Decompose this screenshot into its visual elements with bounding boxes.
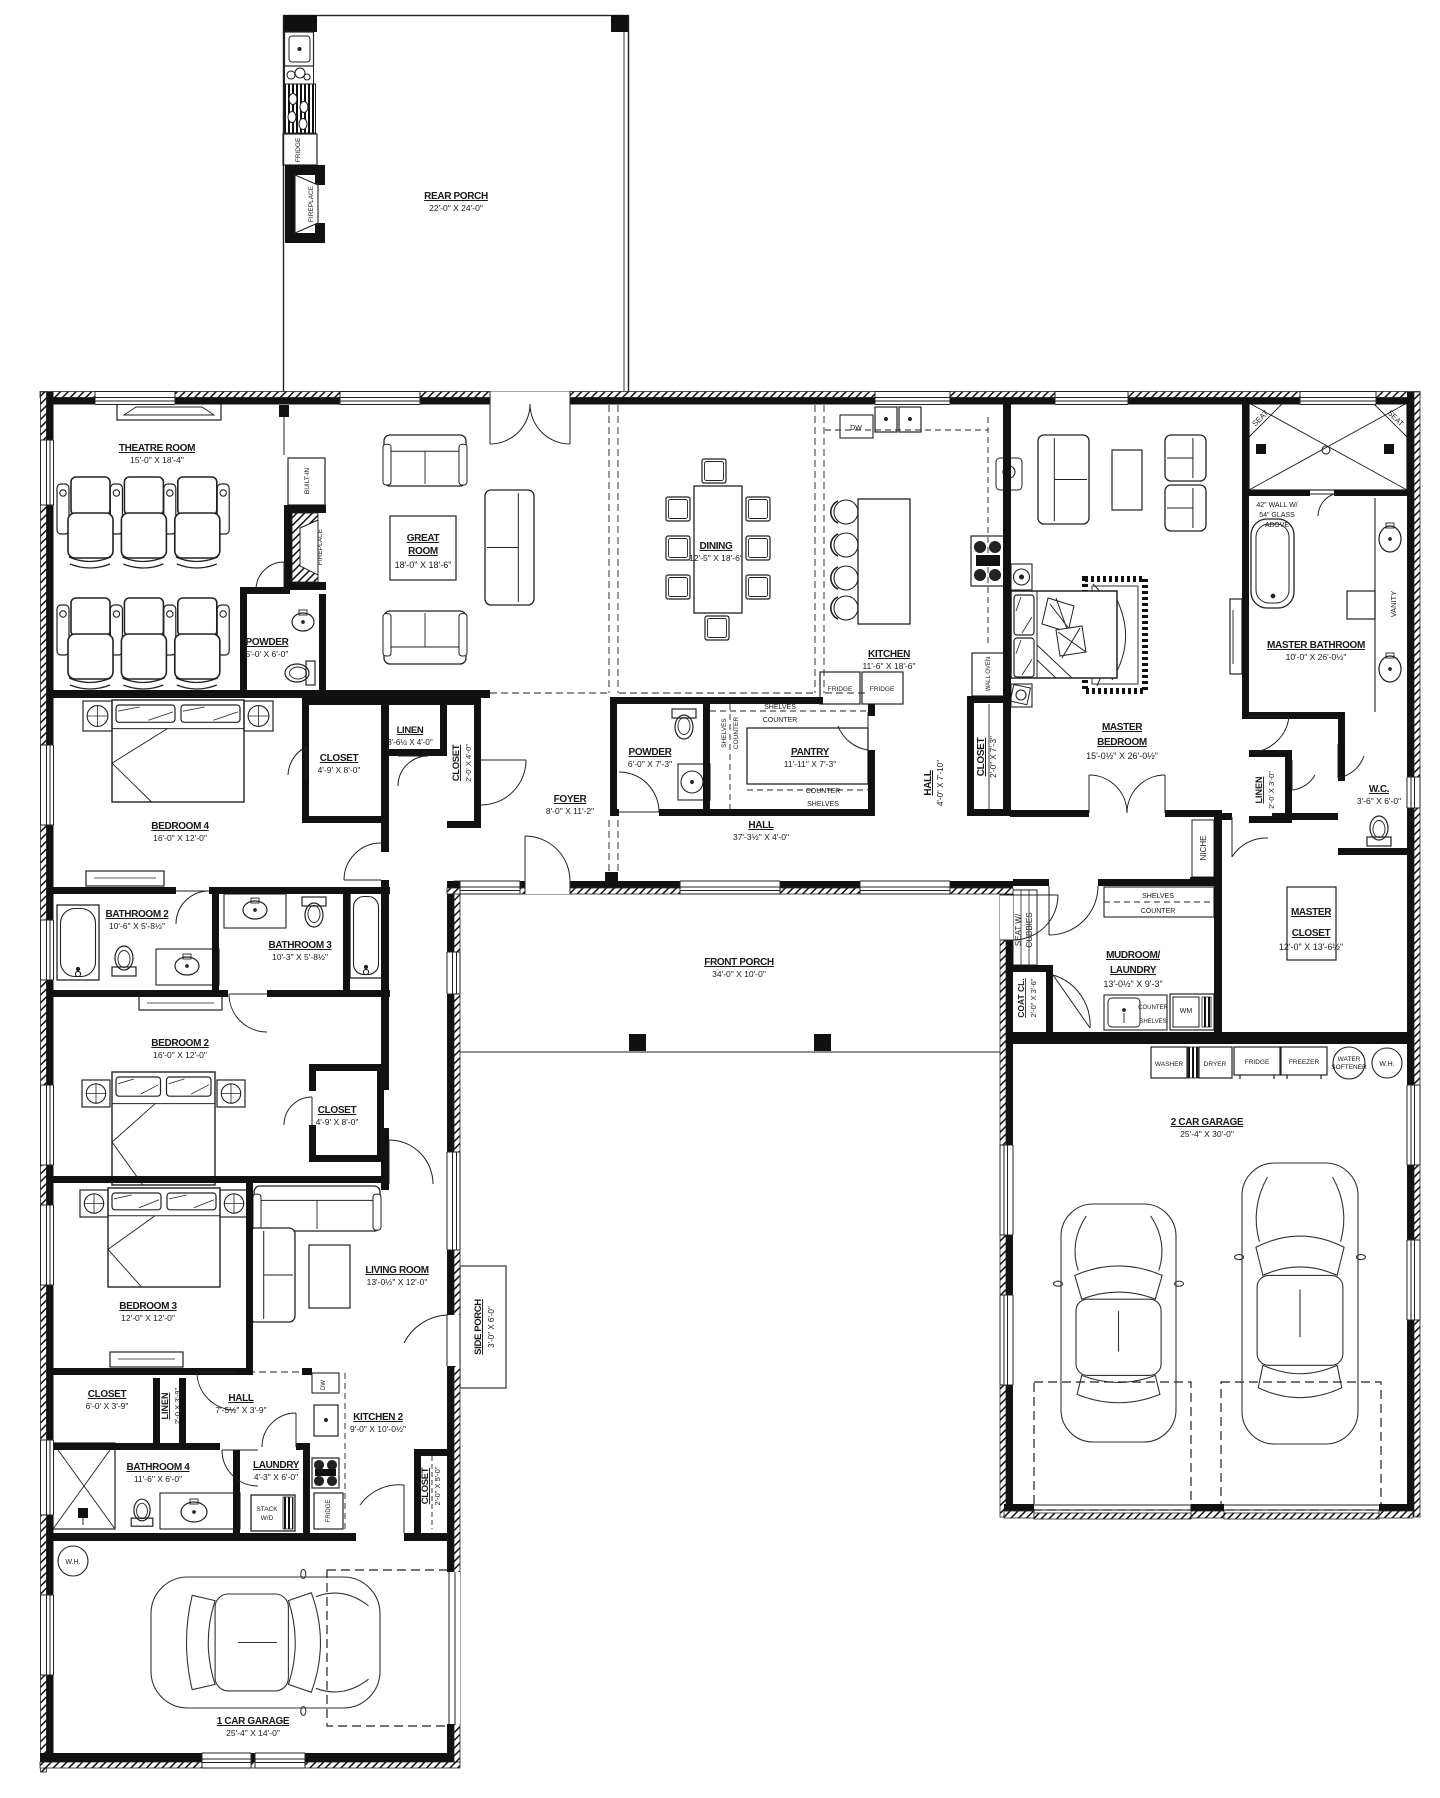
svg-text:2'-0" X 5'-0": 2'-0" X 5'-0": [433, 1466, 442, 1505]
svg-text:DINING: DINING: [700, 541, 733, 552]
svg-text:2'-0' X 4'-0": 2'-0' X 4'-0": [464, 744, 473, 782]
svg-text:12'-0" X 12'-0": 12'-0" X 12'-0": [121, 1313, 175, 1323]
svg-text:LINEN: LINEN: [397, 725, 424, 736]
svg-text:NICHE: NICHE: [1199, 836, 1208, 861]
svg-text:FOYER: FOYER: [554, 794, 588, 805]
svg-text:COUNTER: COUNTER: [763, 717, 798, 724]
svg-text:FRIDGE: FRIDGE: [828, 686, 853, 693]
svg-text:16'-0" X 12'-0": 16'-0" X 12'-0": [153, 1050, 207, 1060]
svg-text:BATHROOM 4: BATHROOM 4: [127, 1462, 191, 1473]
svg-text:LAUNDRY: LAUNDRY: [1110, 965, 1157, 976]
svg-text:7'-5½" X 3'-9": 7'-5½" X 3'-9": [215, 1405, 266, 1415]
svg-text:13'-0½" X 9'-3": 13'-0½" X 9'-3": [1103, 979, 1162, 989]
svg-text:COUNTER: COUNTER: [1141, 908, 1176, 915]
svg-text:COUNTER: COUNTER: [733, 717, 740, 749]
svg-text:6'-0" X 7'-3": 6'-0" X 7'-3": [628, 759, 672, 769]
svg-text:FREEZER: FREEZER: [1289, 1059, 1320, 1066]
svg-text:FIREPLACE: FIREPLACE: [317, 528, 324, 565]
svg-text:W.C.: W.C.: [1369, 784, 1390, 795]
svg-text:5'-0' X 6'-0": 5'-0' X 6'-0": [246, 649, 289, 659]
svg-text:CLOSET: CLOSET: [420, 1467, 431, 1504]
svg-text:12'-5" X 18'-6": 12'-5" X 18'-6": [689, 553, 743, 563]
svg-text:LAUNDRY: LAUNDRY: [253, 1460, 300, 1471]
svg-text:2 CAR GARAGE: 2 CAR GARAGE: [1171, 1117, 1244, 1128]
svg-text:BATHROOM 2: BATHROOM 2: [106, 909, 170, 920]
svg-text:BEDROOM 4: BEDROOM 4: [151, 821, 209, 832]
svg-text:FRIDGE: FRIDGE: [870, 686, 895, 693]
svg-text:2'-0" X 7'-3": 2'-0" X 7'-3": [989, 736, 998, 778]
svg-text:3'-6" X 6'-0": 3'-6" X 6'-0": [1357, 796, 1401, 806]
svg-text:12'-0" X 13'-6½": 12'-0" X 13'-6½": [1279, 942, 1343, 952]
svg-text:3'-0" X 6'-0": 3'-0" X 6'-0": [487, 1306, 496, 1348]
svg-text:LINEN: LINEN: [160, 1393, 170, 1420]
svg-text:FRIDGE: FRIDGE: [326, 1500, 332, 1523]
svg-text:REAR PORCH: REAR PORCH: [424, 191, 488, 202]
svg-text:54" GLASS: 54" GLASS: [1259, 512, 1295, 519]
svg-text:3'-6½ X 4'-0": 3'-6½ X 4'-0": [387, 738, 433, 747]
svg-text:BEDROOM 3: BEDROOM 3: [119, 1301, 177, 1312]
svg-text:4'-9' X 8'-0": 4'-9' X 8'-0": [318, 765, 361, 775]
svg-text:DW: DW: [321, 1380, 327, 1390]
svg-text:25'-4" X 14'-0": 25'-4" X 14'-0": [226, 1728, 280, 1738]
svg-text:4'-9' X 8'-0": 4'-9' X 8'-0": [316, 1117, 359, 1127]
svg-text:KITCHEN 2: KITCHEN 2: [353, 1412, 403, 1423]
svg-text:CLOSET: CLOSET: [320, 753, 359, 764]
svg-text:THEATRE ROOM: THEATRE ROOM: [119, 443, 195, 454]
svg-text:10'-3" X 5'-8½": 10'-3" X 5'-8½": [272, 952, 328, 962]
svg-text:SHELVES: SHELVES: [1142, 893, 1174, 900]
svg-text:9'-0" X 10'-0½": 9'-0" X 10'-0½": [350, 1424, 406, 1434]
svg-text:MASTER BATHROOM: MASTER BATHROOM: [1267, 640, 1365, 651]
svg-text:42" WALL W/: 42" WALL W/: [1256, 502, 1297, 509]
svg-text:SIDE PORCH: SIDE PORCH: [473, 1299, 484, 1355]
svg-text:SEAT W/: SEAT W/: [1014, 913, 1023, 946]
svg-text:BEDROOM: BEDROOM: [1097, 737, 1147, 748]
svg-text:VANITY: VANITY: [1389, 591, 1398, 618]
svg-text:CLOSET: CLOSET: [1292, 928, 1331, 939]
svg-text:8'-0" X 11'-2": 8'-0" X 11'-2": [546, 806, 594, 816]
svg-text:MASTER: MASTER: [1102, 722, 1143, 733]
svg-text:BEDROOM 2: BEDROOM 2: [151, 1038, 209, 1049]
svg-text:WALL OVEN: WALL OVEN: [986, 657, 992, 692]
svg-text:CLOSET: CLOSET: [451, 744, 462, 781]
svg-text:SOFTENER: SOFTENER: [1331, 1064, 1367, 1071]
svg-text:37'-3½" X 4'-0": 37'-3½" X 4'-0": [733, 832, 789, 842]
svg-text:HALL: HALL: [748, 820, 774, 831]
svg-text:15'-0" X 18'-4": 15'-0" X 18'-4": [130, 455, 184, 465]
svg-text:10'-6" X 5'-8½": 10'-6" X 5'-8½": [109, 921, 165, 931]
svg-text:STACK: STACK: [256, 1506, 278, 1513]
svg-text:PANTRY: PANTRY: [791, 747, 830, 758]
svg-text:SHELVES: SHELVES: [807, 801, 839, 808]
svg-text:POWDER: POWDER: [246, 637, 290, 648]
svg-text:SHELVES: SHELVES: [721, 718, 728, 748]
svg-text:HALL: HALL: [923, 770, 934, 796]
svg-text:BATHROOM 3: BATHROOM 3: [269, 940, 333, 951]
svg-text:DW: DW: [850, 425, 862, 432]
svg-text:W.H.: W.H.: [1379, 1061, 1394, 1068]
svg-text:COUNTER: COUNTER: [1138, 1005, 1168, 1011]
svg-text:2'-0" X 3'-6": 2'-0" X 3'-6": [1029, 978, 1038, 1017]
svg-text:COAT CL.: COAT CL.: [1016, 978, 1026, 1018]
svg-text:COUNTER: COUNTER: [806, 788, 841, 795]
svg-text:KITCHEN: KITCHEN: [868, 649, 910, 660]
svg-text:34'-0" X 10'-0": 34'-0" X 10'-0": [712, 969, 766, 979]
svg-text:13'-0½" X 12'-0": 13'-0½" X 12'-0": [367, 1277, 428, 1287]
svg-text:MASTER: MASTER: [1291, 907, 1332, 918]
svg-text:25'-4" X 30'-0": 25'-4" X 30'-0": [1180, 1129, 1234, 1139]
svg-text:11'-6" X 6'-0": 11'-6" X 6'-0": [134, 1474, 182, 1484]
svg-text:WASHER: WASHER: [1155, 1061, 1184, 1068]
svg-text:CLOSET: CLOSET: [318, 1105, 357, 1116]
svg-text:18'-0" X 18'-6": 18'-0" X 18'-6": [395, 560, 452, 570]
svg-text:POWDER: POWDER: [629, 747, 673, 758]
svg-text:FIREPLACE: FIREPLACE: [308, 185, 315, 222]
svg-text:WM: WM: [1180, 1008, 1193, 1015]
svg-text:11'-6" X 18'-6": 11'-6" X 18'-6": [862, 661, 915, 671]
svg-text:4'-0" X 7'-10": 4'-0" X 7'-10": [936, 760, 945, 806]
svg-text:CLOSET: CLOSET: [976, 738, 987, 777]
svg-text:16'-0" X 12'-0": 16'-0" X 12'-0": [153, 833, 207, 843]
svg-text:W/D: W/D: [261, 1515, 274, 1522]
svg-text:22'-0" X 24'-0": 22'-0" X 24'-0": [429, 203, 483, 213]
svg-text:LINEN: LINEN: [1254, 777, 1264, 804]
svg-text:MUDROOM/: MUDROOM/: [1106, 950, 1160, 961]
svg-text:SHELVES: SHELVES: [764, 704, 796, 711]
svg-text:2'-0' X 3'-0": 2'-0' X 3'-0": [1267, 771, 1276, 809]
svg-text:ROOM: ROOM: [408, 546, 438, 557]
svg-text:BUILT-IN: BUILT-IN: [304, 468, 311, 495]
svg-text:W.H.: W.H.: [65, 1559, 80, 1566]
svg-text:1 CAR GARAGE: 1 CAR GARAGE: [217, 1716, 290, 1727]
svg-text:6'-0' X 3'-9": 6'-0' X 3'-9": [86, 1401, 129, 1411]
svg-text:CLOSET: CLOSET: [88, 1389, 127, 1400]
svg-text:GREAT: GREAT: [407, 533, 440, 544]
svg-text:WATER: WATER: [1338, 1056, 1361, 1063]
svg-text:HALL: HALL: [228, 1393, 254, 1404]
svg-text:DRYER: DRYER: [1204, 1061, 1227, 1068]
svg-text:15'-0½" X 26'-0½": 15'-0½" X 26'-0½": [1086, 751, 1158, 761]
svg-text:FRIDGE: FRIDGE: [1245, 1059, 1270, 1066]
svg-text:FRONT PORCH: FRONT PORCH: [704, 957, 774, 968]
svg-text:11'-11" X 7'-3": 11'-11" X 7'-3": [784, 759, 836, 769]
svg-text:10'-0" X 26'-0½": 10'-0" X 26'-0½": [1286, 652, 1347, 662]
svg-text:FRIDGE: FRIDGE: [295, 137, 302, 162]
svg-text:CUBBIES: CUBBIES: [1025, 912, 1034, 947]
svg-text:4'-3" X 6'-0": 4'-3" X 6'-0": [254, 1472, 298, 1482]
svg-text:LIVING ROOM: LIVING ROOM: [365, 1265, 428, 1276]
svg-text:SHELVES: SHELVES: [1139, 1019, 1166, 1025]
